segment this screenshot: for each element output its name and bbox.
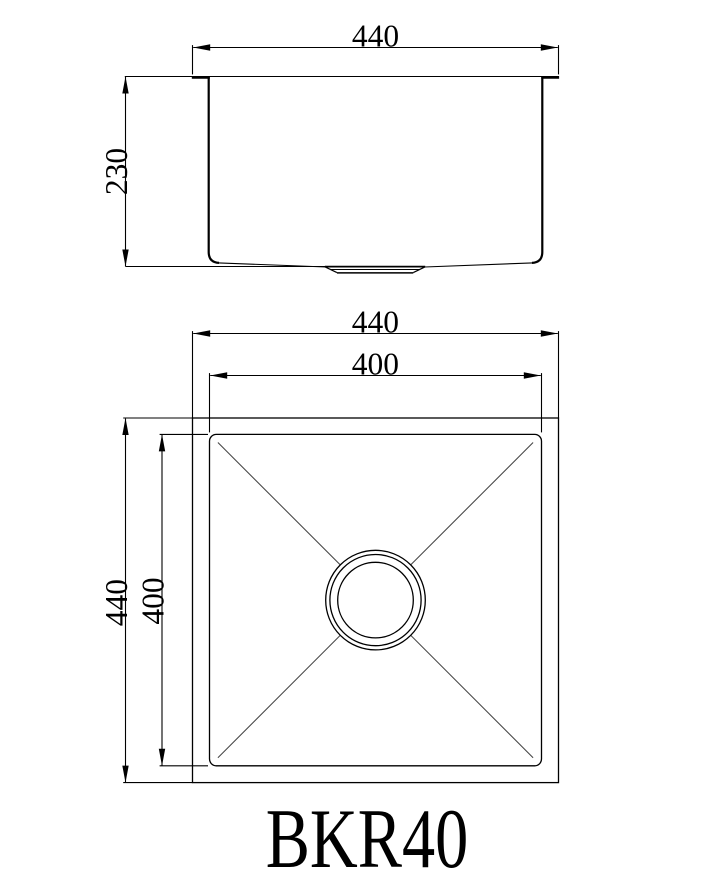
- svg-text:230: 230: [99, 148, 134, 195]
- svg-text:440: 440: [99, 579, 134, 626]
- svg-text:400: 400: [136, 577, 171, 624]
- svg-text:440: 440: [352, 305, 399, 340]
- svg-text:BKR40: BKR40: [266, 792, 469, 882]
- svg-text:440: 440: [352, 18, 399, 53]
- svg-text:400: 400: [352, 347, 399, 382]
